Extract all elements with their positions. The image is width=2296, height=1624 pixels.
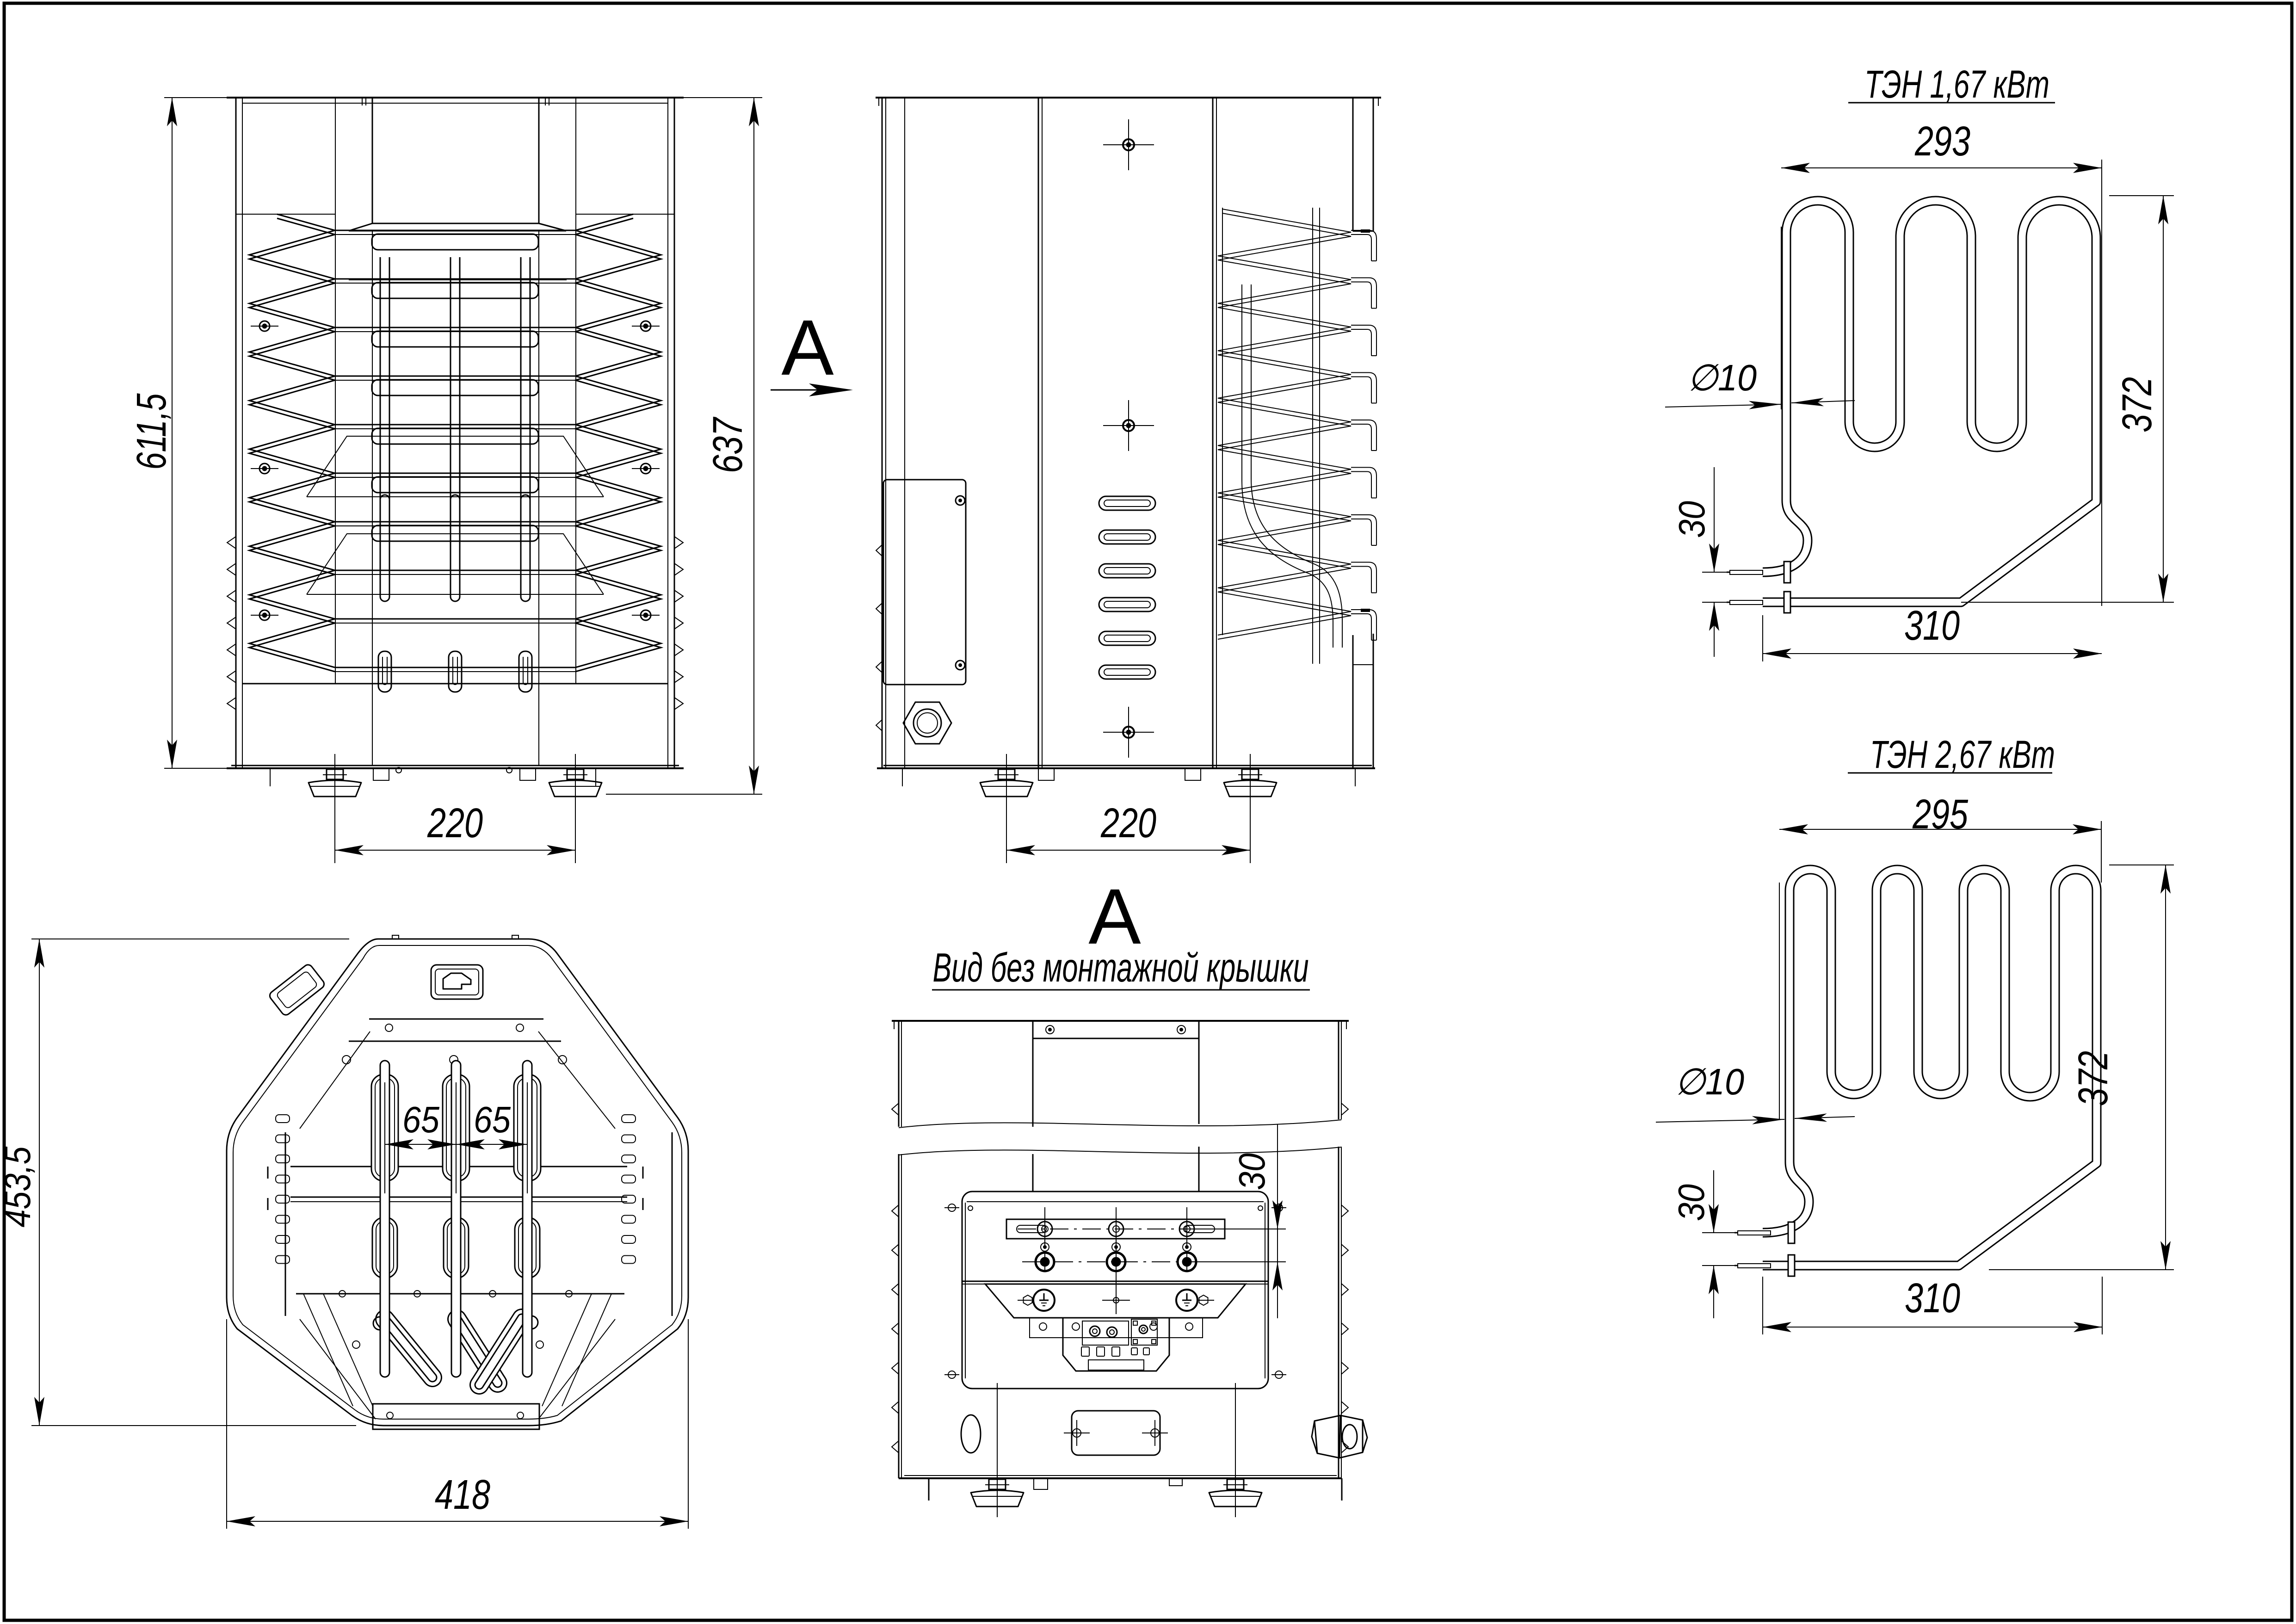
svg-text:ТЭН 1,67 кВт: ТЭН 1,67 кВт — [1864, 62, 2049, 106]
svg-text:372: 372 — [2070, 1051, 2117, 1106]
svg-text:220: 220 — [427, 800, 483, 846]
svg-text:453,5: 453,5 — [0, 1146, 38, 1227]
svg-text:372: 372 — [2114, 377, 2160, 432]
svg-text:Вид без монтажной крышки: Вид без монтажной крышки — [933, 945, 1309, 990]
svg-text:∅10: ∅10 — [1687, 357, 1757, 398]
svg-text:220: 220 — [1100, 800, 1156, 846]
svg-text:30: 30 — [1671, 1184, 1712, 1221]
svg-text:293: 293 — [1914, 118, 1970, 165]
svg-text:295: 295 — [1912, 791, 1969, 838]
svg-text:30: 30 — [1671, 501, 1712, 538]
svg-text:637: 637 — [705, 417, 751, 473]
svg-text:30: 30 — [1231, 1153, 1272, 1190]
svg-text:65: 65 — [402, 1099, 439, 1140]
svg-text:418: 418 — [435, 1472, 490, 1518]
svg-text:65: 65 — [474, 1099, 511, 1140]
svg-text:A: A — [781, 304, 834, 392]
svg-text:611,5: 611,5 — [129, 393, 175, 470]
svg-text:310: 310 — [1905, 1275, 1960, 1321]
svg-text:∅10: ∅10 — [1675, 1061, 1744, 1102]
svg-text:ТЭН 2,67 кВт: ТЭН 2,67 кВт — [1870, 733, 2055, 776]
svg-text:310: 310 — [1904, 603, 1960, 649]
